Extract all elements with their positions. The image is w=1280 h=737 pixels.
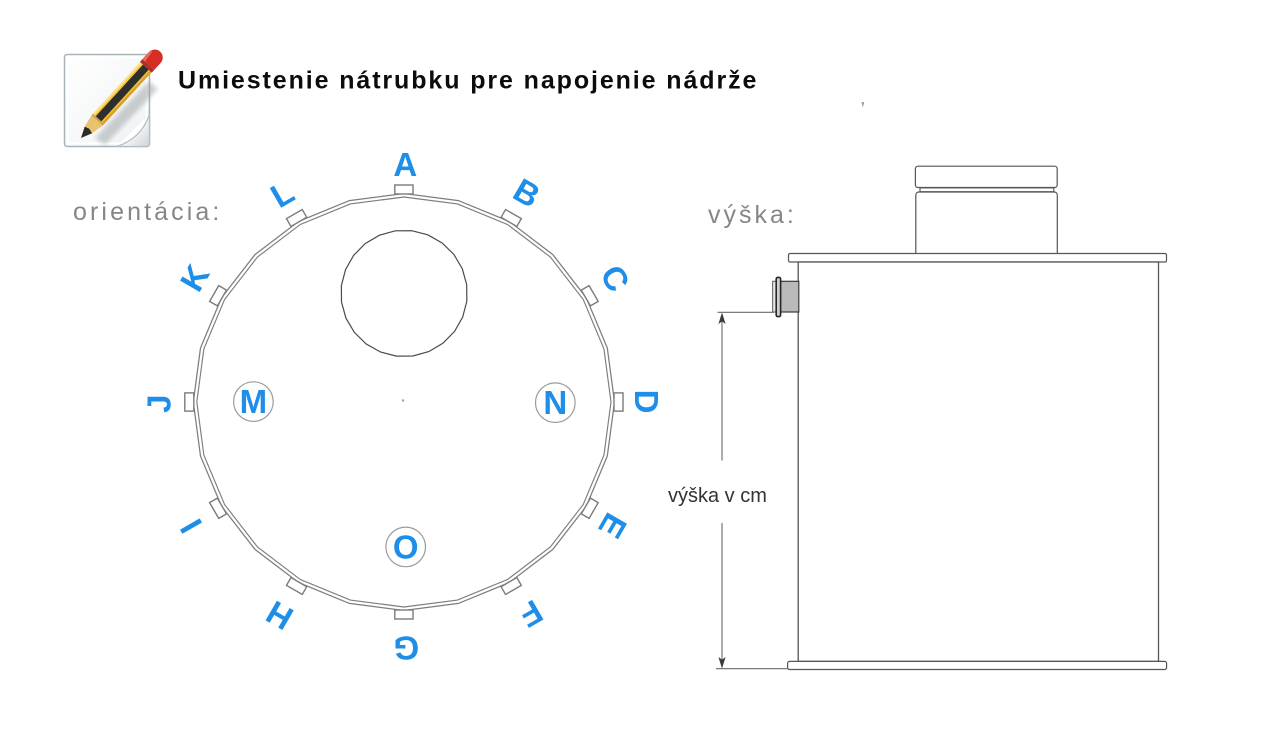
svg-text:K: K: [173, 258, 217, 297]
svg-text:výška:: výška:: [708, 201, 797, 229]
svg-text:N: N: [543, 384, 567, 421]
svg-text:O: O: [393, 528, 419, 565]
svg-text:Umiestenie nátrubku pre napoje: Umiestenie nátrubku pre napojenie nádrže: [178, 67, 758, 95]
svg-text:výška v cm: výška v cm: [668, 485, 767, 507]
svg-text:A: A: [393, 146, 417, 183]
svg-text:B: B: [507, 171, 546, 215]
svg-text:M: M: [240, 383, 268, 420]
svg-text:H: H: [260, 594, 299, 638]
svg-text:I: I: [173, 513, 210, 539]
svg-text:J: J: [141, 395, 178, 413]
svg-text:E: E: [591, 507, 634, 545]
svg-text:C: C: [593, 259, 637, 298]
svg-text:orientácia:: orientácia:: [73, 198, 222, 226]
svg-text:D: D: [628, 390, 665, 414]
svg-text:L: L: [264, 173, 300, 215]
svg-text:G: G: [393, 630, 419, 667]
svg-text:F: F: [513, 593, 549, 635]
